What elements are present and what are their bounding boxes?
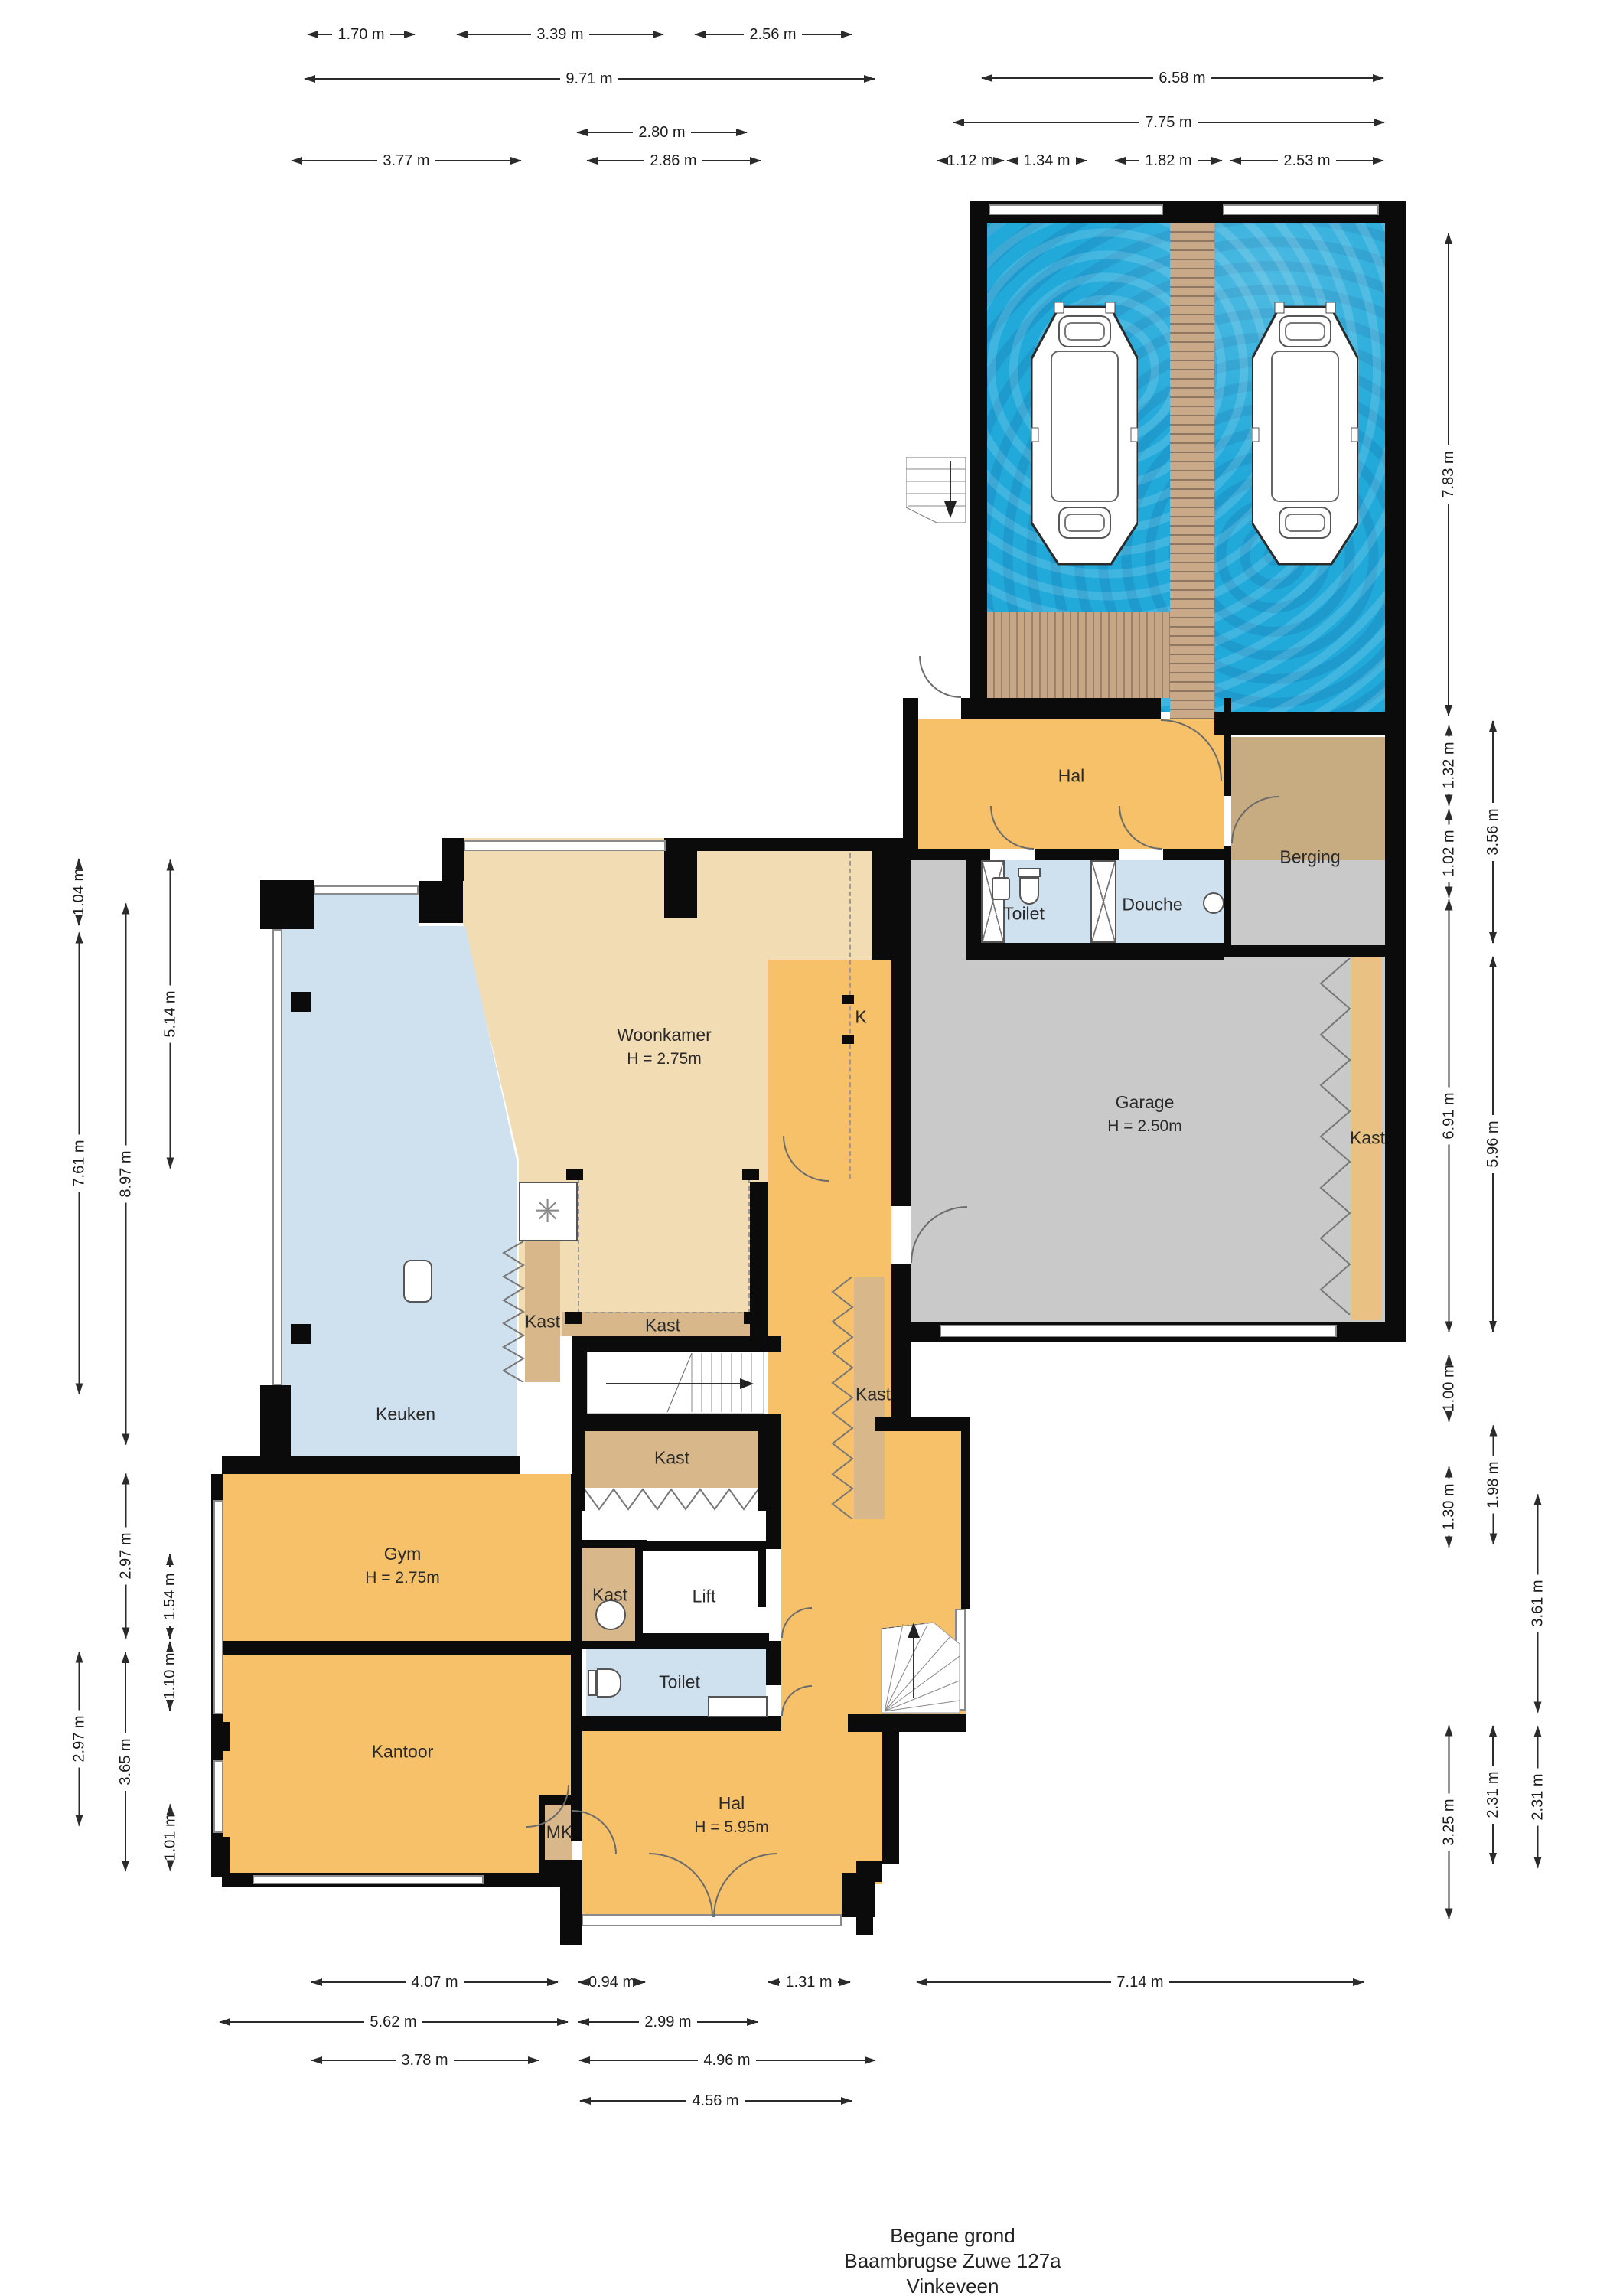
wall [211,1641,582,1655]
toilet-icon [1018,868,1041,877]
wall [966,943,1224,960]
shape: Kast [525,1310,560,1334]
room-kantoor [223,1655,571,1873]
dl [702,160,761,161]
shape: Kast [855,1383,891,1407]
shape [1279,316,1331,347]
dt: 7.61 m [70,1134,88,1192]
dimension: 2.53 m [1230,152,1383,170]
dimension: 3.61 m [1528,1495,1546,1713]
dt: 1.54 m [161,1567,179,1625]
dimension: 0.94 m [578,1973,640,1991]
folding-door [502,1241,525,1382]
shape [906,457,966,523]
dt: 1.98 m [1484,1456,1502,1513]
sub: H = 5.95m [694,1815,768,1839]
dt: 3.39 m [531,25,588,44]
dl [125,1585,126,1639]
dt: 9.71 m [560,70,618,88]
dimension: 2.97 m [70,1652,88,1826]
dl [1448,1467,1449,1479]
dimension: 1.82 m [1115,152,1222,170]
wall [697,838,872,851]
dl [1448,882,1449,898]
kitchen-sink-icon [403,1260,432,1303]
dl [999,160,1004,161]
dimension: 1.02 m [1439,810,1458,898]
dl [422,2021,568,2023]
window [1223,204,1379,215]
dt: 2.31 m [1484,1766,1502,1823]
dl [1448,1536,1449,1548]
wall [222,1456,520,1474]
window [272,929,282,1385]
dimension: 7.14 m [917,1973,1364,1991]
dimension: 3.25 m [1439,1726,1458,1919]
toilet-icon [1019,877,1039,905]
wall [1385,201,1406,1342]
wall [961,1417,970,1609]
dimension: 2.56 m [695,25,852,44]
room-label-toilet-bottom: Toilet [659,1671,700,1694]
dimension: 2.97 m [116,1474,135,1639]
wall [848,1714,966,1732]
dl [580,2100,687,2102]
wall [572,1427,585,1511]
window [213,1760,223,1833]
dimension: 1.98 m [1484,1426,1502,1544]
folding-door [1319,958,1351,1315]
dimension: 1.32 m [1439,726,1458,806]
dimension: 9.71 m [305,70,875,88]
wall [758,1549,766,1607]
dl [169,860,171,986]
wall [903,698,918,860]
dl [78,1768,80,1826]
window [989,204,1163,215]
wall [766,1647,781,1685]
dl [1448,1145,1449,1332]
dt: 2.86 m [644,152,702,170]
dimension: 8.97 m [116,904,135,1445]
dl [697,2021,758,2023]
dt: 2.80 m [633,123,690,142]
dt: 1.12 m [942,152,999,170]
dt: 2.97 m [70,1710,88,1767]
window [213,1500,223,1714]
wall-stub [742,1169,759,1180]
shape: Toilet [659,1671,700,1694]
shape [1059,507,1110,538]
shape: Garage [1107,1091,1181,1114]
dl [1492,721,1494,803]
dl [1448,504,1449,716]
dl [169,1804,171,1808]
dt: 1.10 m [161,1647,179,1704]
room-label-hal-bottom: HalH = 5.95m [694,1792,768,1839]
dl [169,1043,171,1169]
dl [1492,1514,1494,1544]
dl [78,1192,80,1394]
dimension: 1.04 m [70,863,88,925]
dl [78,921,80,925]
wall [1224,945,1385,957]
dt: 6.91 m [1439,1087,1458,1144]
dl [953,122,1140,123]
shape [1321,958,1350,1315]
dt: 2.31 m [1528,1768,1546,1825]
dl [125,1791,126,1871]
wall [882,1732,899,1864]
room-label-berging: Berging [1279,846,1340,869]
dl [691,132,747,133]
wall [903,849,990,860]
sub: H = 2.75m [617,1047,712,1071]
wall [1214,712,1385,735]
dl [1492,1426,1494,1456]
vide-dashed-outline [578,1179,750,1313]
dl [578,2021,639,2023]
room-label-gym: GymH = 2.75m [365,1542,439,1590]
dt: 3.25 m [1439,1793,1458,1851]
wall [891,860,911,1206]
dt: 2.97 m [116,1527,135,1584]
shape [1275,302,1284,313]
dt: 1.00 m [1439,1359,1458,1417]
sink-icon [708,1696,768,1717]
dimension: 1.10 m [161,1642,179,1711]
dt: 8.97 m [116,1145,135,1202]
stairs-main [587,1352,764,1414]
dt: 4.07 m [406,1973,463,1991]
shape [504,1241,523,1382]
shape [585,1489,758,1509]
dt: 1.01 m [161,1808,179,1866]
toilet-icon [588,1670,597,1696]
dl [390,34,415,35]
dl [1198,122,1384,123]
dimension: 3.65 m [116,1652,135,1871]
pool-dock [1170,223,1214,719]
room-label-kast-5: Kast [592,1583,627,1607]
shape [1279,507,1331,538]
wall [211,1722,230,1751]
shower-icon [1203,892,1224,914]
shape: Kantoor [372,1740,434,1764]
wall [891,1264,911,1431]
wall [1224,719,1231,796]
dl [587,160,645,161]
dl [1448,726,1449,737]
dl [169,1867,171,1871]
dt: 1.04 m [70,863,88,921]
shape: K [855,1006,866,1029]
dl [577,132,633,133]
dt: 1.70 m [332,25,389,44]
dl [1448,1355,1449,1359]
wall [1163,849,1231,860]
dl [1492,1173,1494,1332]
dt: 3.78 m [396,2051,453,2069]
dl [308,34,332,35]
dl [768,1981,781,1983]
dl [125,1474,126,1528]
dl [220,2021,365,2023]
dt: 3.77 m [377,152,435,170]
dl [125,1652,126,1733]
shape: Kast [1350,1127,1385,1150]
dl [1448,810,1449,825]
dl [589,34,663,35]
wall [539,1860,582,1873]
room-label-woonkamer: WoonkamerH = 2.75m [617,1023,712,1071]
wall [442,838,464,881]
dimension: 7.75 m [953,113,1384,132]
boat-icon [1031,302,1138,569]
wall [582,1540,647,1548]
dimension: 4.56 m [580,2092,852,2110]
wall [961,698,1161,719]
dl [1448,794,1449,806]
dl [311,2060,396,2061]
shape [1131,428,1138,442]
wall [766,1431,781,1549]
room-label-kast-3: Kast [654,1446,689,1470]
wall [571,1716,781,1731]
dl [1492,1824,1494,1864]
dt: 2.56 m [744,25,801,44]
dimension: 5.62 m [220,2013,568,2031]
dl [1230,160,1278,161]
dl [756,2060,875,2061]
wall-stub [842,995,854,1004]
shape: Douche [1122,893,1182,917]
dimension: 3.39 m [457,25,663,44]
garage-door [940,1325,1337,1337]
dt: 4.96 m [698,2051,755,2069]
dl [1211,77,1383,79]
dimension: 1.01 m [161,1805,179,1871]
dimension: 6.58 m [982,69,1383,87]
dl [1169,1981,1364,1983]
dl [1492,957,1494,1115]
wall [560,1873,582,1945]
vide-dashed-line [849,838,851,1179]
wall [260,1385,291,1456]
dimension: 2.80 m [577,123,747,142]
shape [1106,302,1115,313]
shape: Toilet [1003,902,1045,926]
dl [1537,1826,1538,1868]
dt: 5.62 m [364,2013,422,2031]
dl [1492,861,1494,943]
toilet-icon [597,1668,621,1698]
dl [982,77,1154,79]
room-label-garage: GarageH = 2.50m [1107,1091,1181,1138]
room-label-kast-2: Kast [645,1314,680,1338]
dt: 1.82 m [1139,152,1197,170]
dt: 7.83 m [1439,445,1458,503]
wall [635,1548,643,1641]
dl [78,933,80,1135]
dimension: 1.30 m [1439,1467,1458,1548]
dl [578,1981,583,1983]
pool-deck [987,612,1170,698]
dimension: 7.61 m [70,933,88,1394]
shape: Kast [645,1314,680,1338]
dl [579,2060,699,2061]
wall [664,838,697,918]
shape: Keuken [376,1403,435,1427]
title-line-3: Vinkeveen [844,2274,1061,2296]
shape: Hal [694,1792,768,1815]
dimension: 5.14 m [161,860,179,1169]
folding-door [831,1277,854,1519]
dl [1537,1495,1538,1575]
room-label-k: K [855,1006,866,1029]
wall-stub [842,1035,854,1044]
title-line-1: Begane grond [844,2223,1061,2249]
dl [1448,1726,1449,1794]
dt: 3.61 m [1528,1574,1546,1632]
plan-title: Begane grond Baambrugse Zuwe 127a Vinkev… [844,2223,1061,2296]
dl [1537,1727,1538,1769]
wall [571,1641,781,1649]
dl [1007,160,1018,161]
shape [1326,302,1335,313]
dimension: 3.78 m [311,2051,539,2069]
dimension: 1.12 m [937,152,1002,170]
room-label-kantoor: Kantoor [372,1740,434,1764]
stairs-winder [880,1621,961,1714]
wall [419,881,463,923]
dt: 4.56 m [686,2092,744,2110]
dl [125,904,126,1146]
wall [578,1414,781,1431]
dl [1198,160,1222,161]
shape [1031,428,1038,442]
dl [464,1981,558,1983]
dimension: 1.00 m [1439,1357,1458,1422]
dimension: 2.99 m [578,2013,758,2031]
dl [917,1981,1111,1983]
dl [695,34,745,35]
floor-plan: ✳ Begane grond Baambrugse Zuwe 127a Vink… [0,0,1623,2296]
dimension: 4.96 m [579,2051,875,2069]
wall [750,1182,768,1336]
dl [1448,900,1449,1088]
shape: MK [546,1821,573,1844]
sink-icon [992,877,1010,900]
dl [305,78,561,80]
wall [970,201,987,698]
dimension: 1.70 m [308,25,415,44]
dl [1448,233,1449,445]
wall [1035,849,1119,860]
boat-icon [1252,302,1358,569]
dt: 1.34 m [1018,152,1075,170]
dl [169,1642,171,1647]
dl [292,160,377,161]
column [291,1324,311,1344]
room-label-kast-garage: Kast [1350,1127,1385,1150]
dimension: 1.31 m [768,1973,850,1991]
shape: Kast [654,1446,689,1470]
shape: Lift [693,1585,716,1609]
shape [1252,428,1259,442]
dt: 6.58 m [1153,69,1211,87]
sub: H = 2.75m [365,1566,439,1590]
dl [1537,1632,1538,1713]
dt: 1.32 m [1439,736,1458,794]
dimension: 2.31 m [1484,1726,1502,1864]
dl [169,1705,171,1711]
room-label-hal-top: Hal [1058,765,1085,788]
stairs-exterior [906,457,966,523]
wall [578,1336,781,1352]
dimension: 1.34 m [1007,152,1087,170]
dl [838,1981,850,1983]
dt: 3.65 m [116,1733,135,1790]
dimension: 1.54 m [161,1554,179,1639]
window [464,840,666,851]
dimension: 3.77 m [292,152,521,170]
dimension: 2.86 m [587,152,761,170]
window [314,885,419,895]
dl [78,1652,80,1711]
window [253,1875,484,1884]
shaft [981,860,1005,943]
dt: 5.14 m [161,985,179,1042]
dt: 5.96 m [1484,1115,1502,1172]
dt: 0.94 m [583,1973,640,1991]
dt: 7.14 m [1111,1973,1168,1991]
wall [211,1837,230,1877]
dl [1115,160,1139,161]
dimension: 3.56 m [1484,721,1502,943]
dl [169,1554,171,1567]
dt: 1.31 m [780,1973,837,1991]
dimension: 7.83 m [1439,233,1458,716]
fan-icon: ✳ [534,1195,561,1228]
dimension: 5.96 m [1484,957,1502,1332]
wall [571,1474,582,1841]
dl [640,1981,645,1983]
dl [311,1981,406,1983]
dl [1076,160,1087,161]
shape [587,1352,764,1414]
dimension: 2.31 m [1528,1727,1546,1868]
column [291,992,311,1012]
room-label-keuken: Keuken [376,1403,435,1427]
room-label-mk: MK [546,1821,573,1844]
room-label-kast-4: Kast [855,1383,891,1407]
dimension: 6.91 m [1439,900,1458,1332]
dl [169,1626,171,1639]
wall [1224,846,1231,945]
wall-stub [565,1312,582,1324]
dl [454,2060,539,2061]
shape: Hal [1058,765,1085,788]
room-label-kast-1: Kast [525,1310,560,1334]
shaft [1090,860,1116,943]
room-label-toilet-top: Toilet [1003,902,1045,926]
wall [643,1633,769,1641]
folding-door [585,1488,758,1511]
wall [875,1417,966,1431]
dl [1448,1851,1449,1919]
room-label-lift: Lift [693,1585,716,1609]
